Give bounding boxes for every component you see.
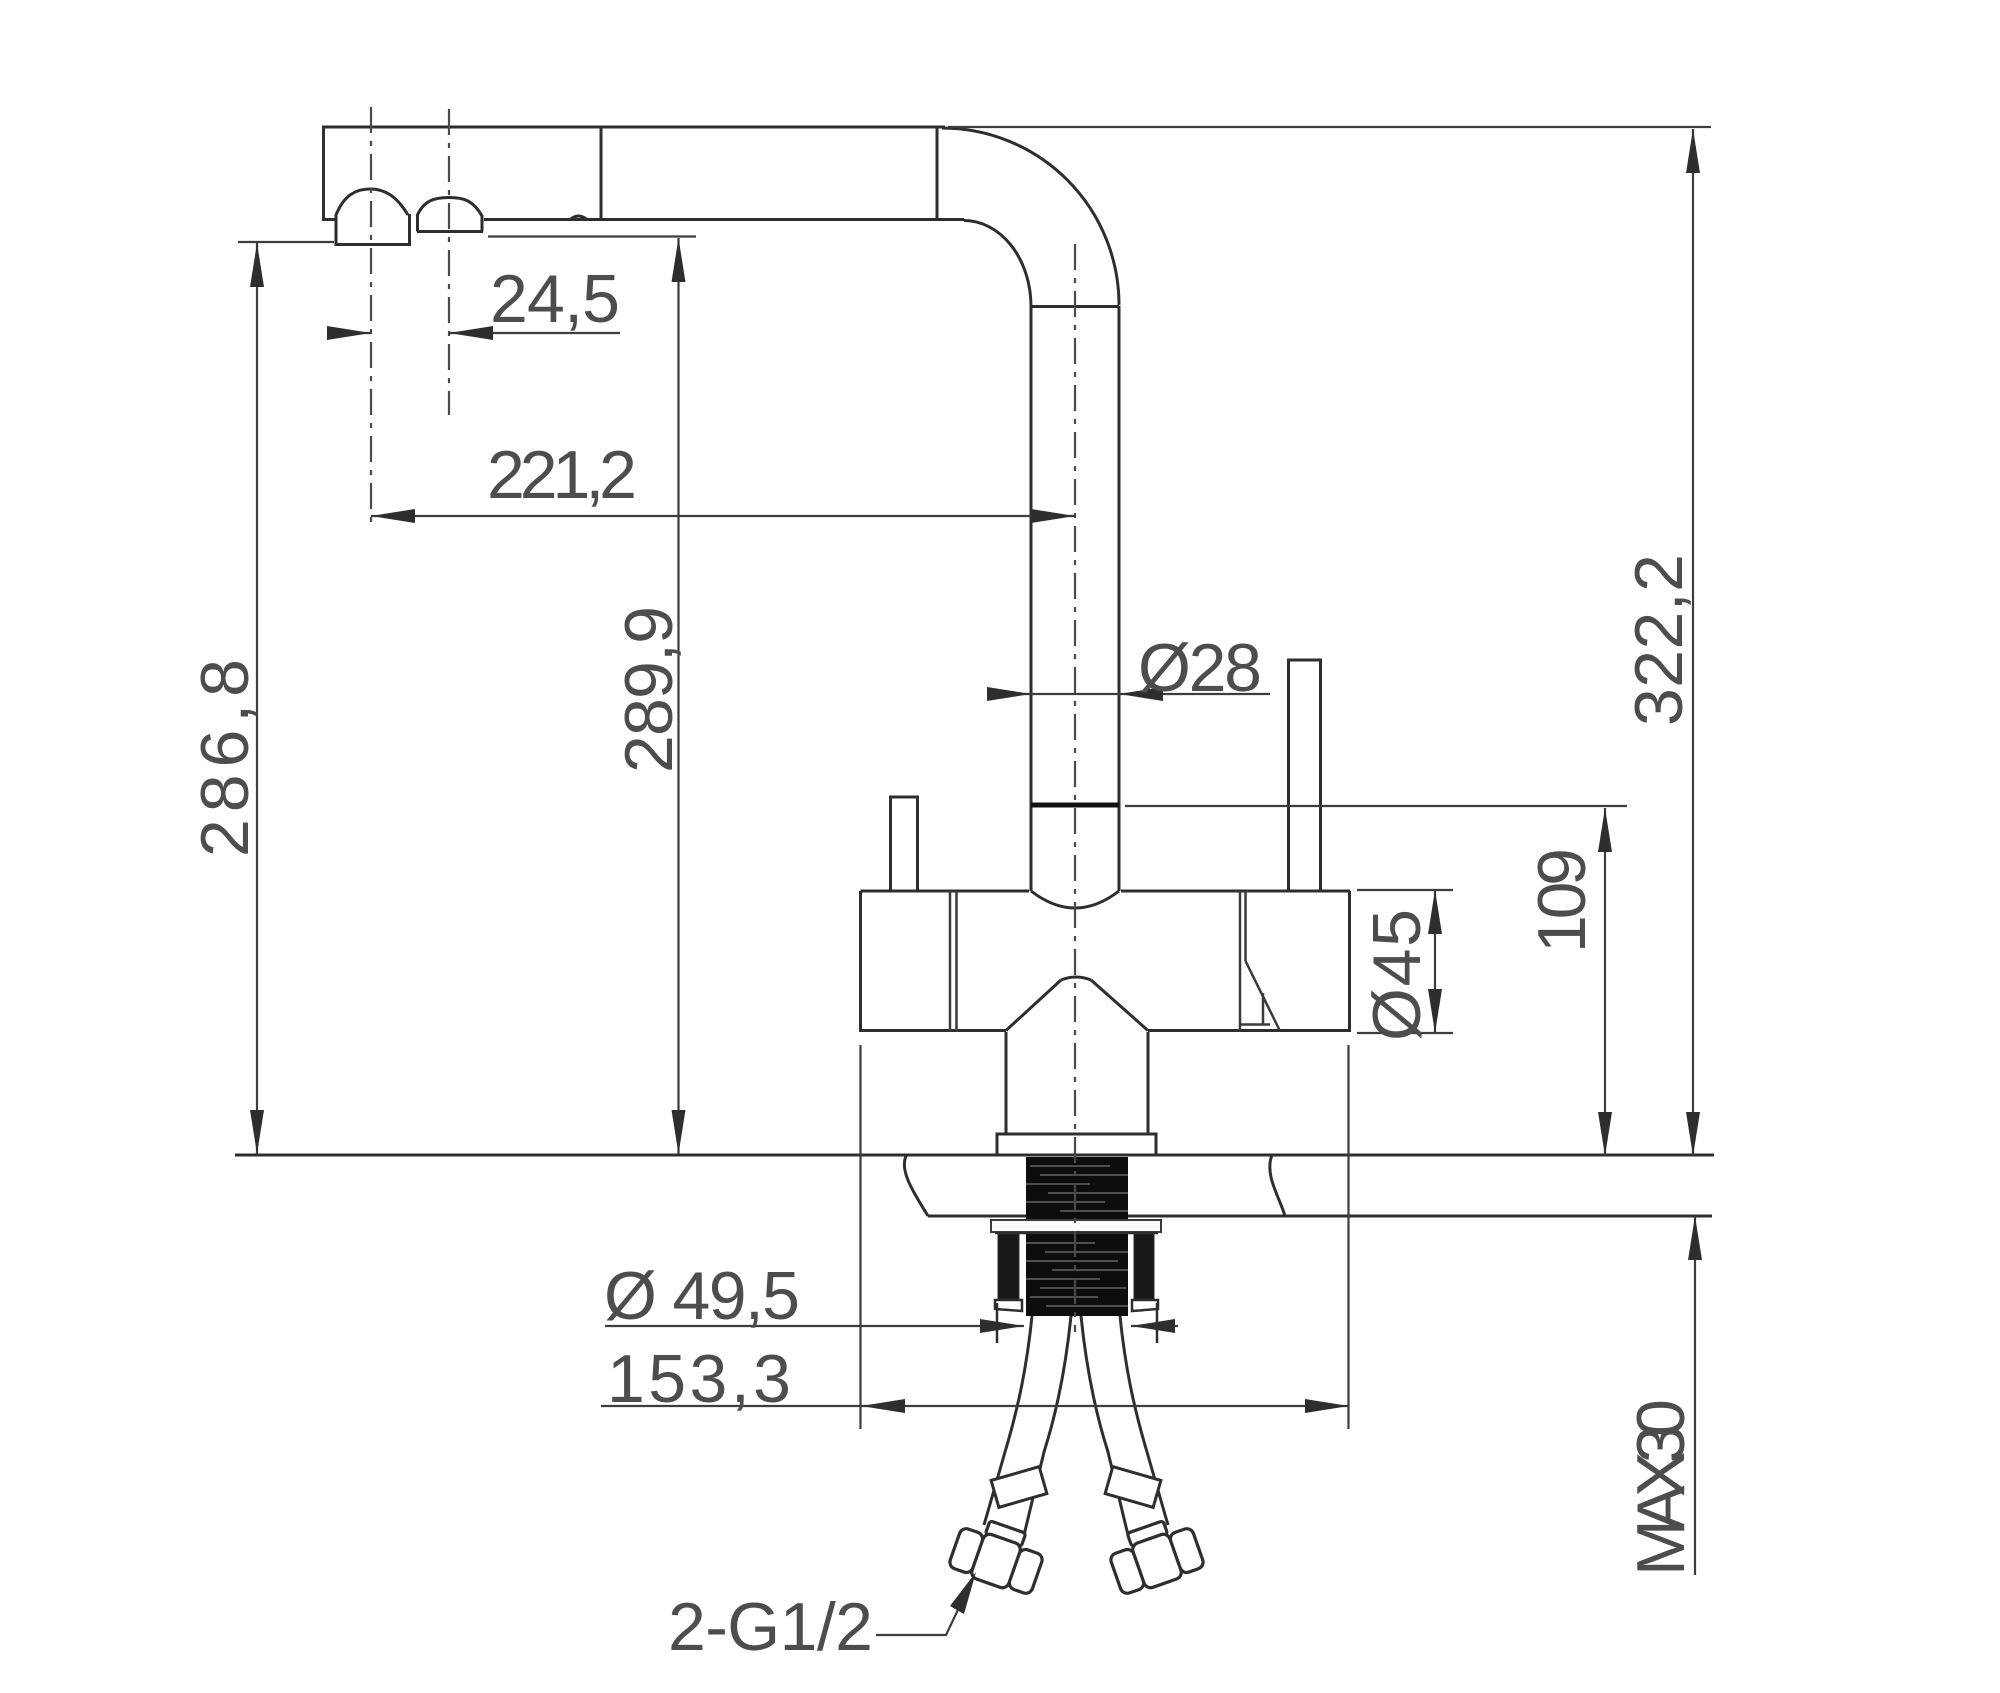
svg-text:153,3: 153,3 bbox=[607, 1341, 791, 1417]
svg-text:2-G1/2: 2-G1/2 bbox=[668, 1589, 873, 1665]
svg-text:Ø45: Ø45 bbox=[1359, 909, 1435, 1041]
svg-text:24,5: 24,5 bbox=[490, 261, 620, 337]
svg-text:286,8: 286,8 bbox=[187, 659, 263, 857]
svg-text:221,2: 221,2 bbox=[487, 437, 637, 513]
svg-text:MAX30: MAX30 bbox=[1623, 1399, 1699, 1576]
svg-text:109: 109 bbox=[1524, 848, 1600, 953]
svg-text:322,2: 322,2 bbox=[1621, 554, 1697, 726]
svg-text:Ø28: Ø28 bbox=[1138, 630, 1262, 706]
svg-text:Ø 49,5: Ø 49,5 bbox=[604, 1258, 800, 1334]
svg-text:289,9: 289,9 bbox=[611, 606, 687, 773]
